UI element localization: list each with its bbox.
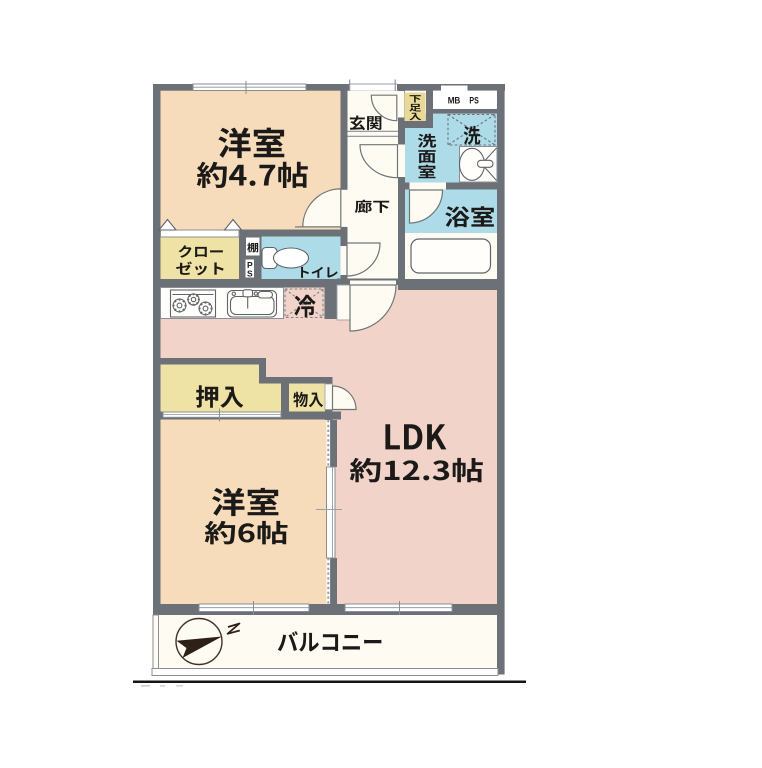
svg-text:S: S	[247, 269, 253, 279]
svg-text:MB: MB	[448, 95, 461, 106]
svg-text:PS: PS	[469, 95, 478, 106]
